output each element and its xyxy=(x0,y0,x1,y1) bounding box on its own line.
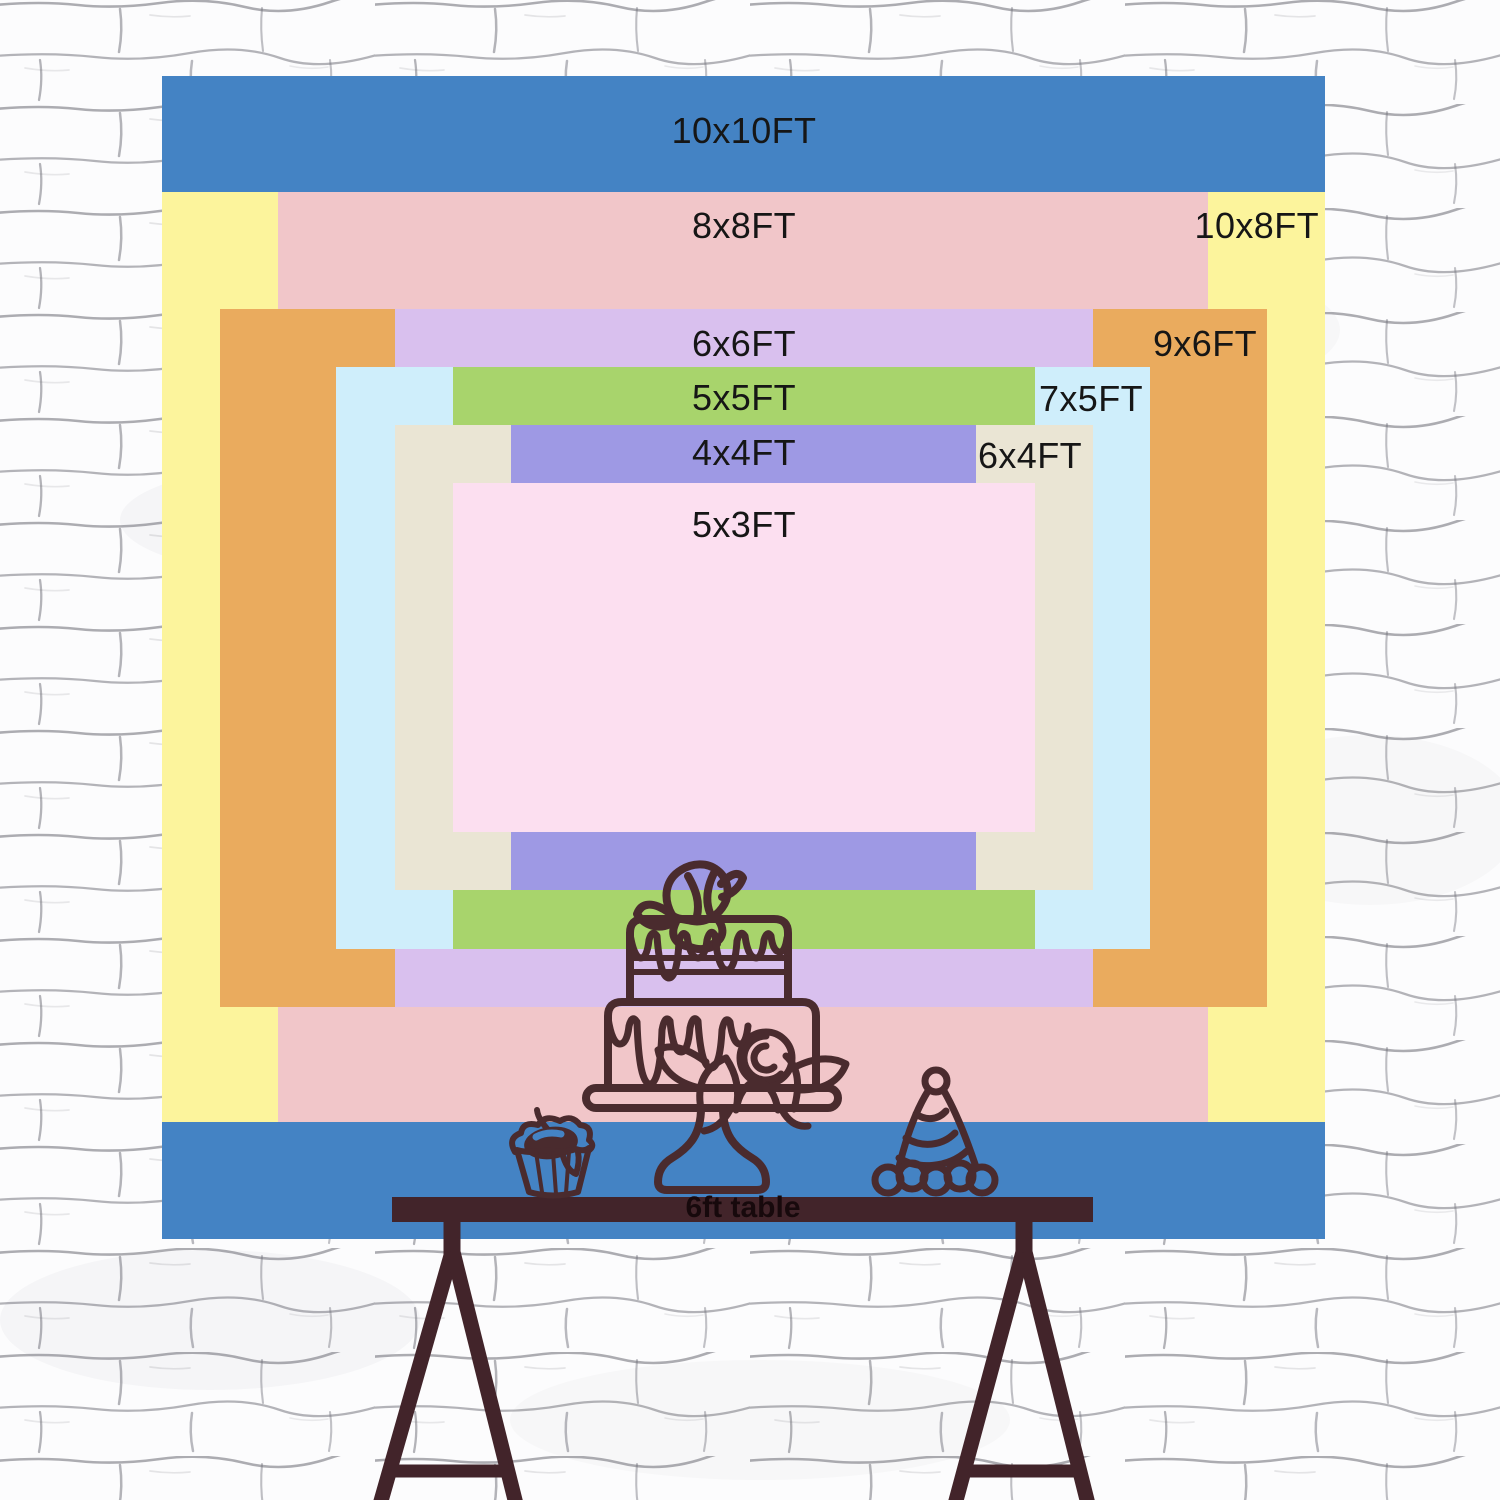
table-trestle-right xyxy=(954,1222,1089,1500)
party-hat-trim xyxy=(875,1163,995,1193)
party-hat-cone-left xyxy=(899,1091,928,1167)
cake-stand-pedestal xyxy=(658,1108,766,1190)
cake-stand-plate xyxy=(586,1088,838,1108)
cake-icon xyxy=(586,864,846,1190)
table-length-label: 6ft table xyxy=(563,1194,923,1222)
table-scene xyxy=(0,0,1500,1500)
table-trestle-left xyxy=(379,1222,517,1500)
party-hat-icon xyxy=(875,1070,995,1193)
cupcake-icon xyxy=(512,1110,592,1196)
backdrop-size-chart-page: 10x10FT10x8FT8x8FT9x6FT6x6FT7x5FT5x5FT6x… xyxy=(0,0,1500,1500)
table xyxy=(379,1197,1093,1500)
